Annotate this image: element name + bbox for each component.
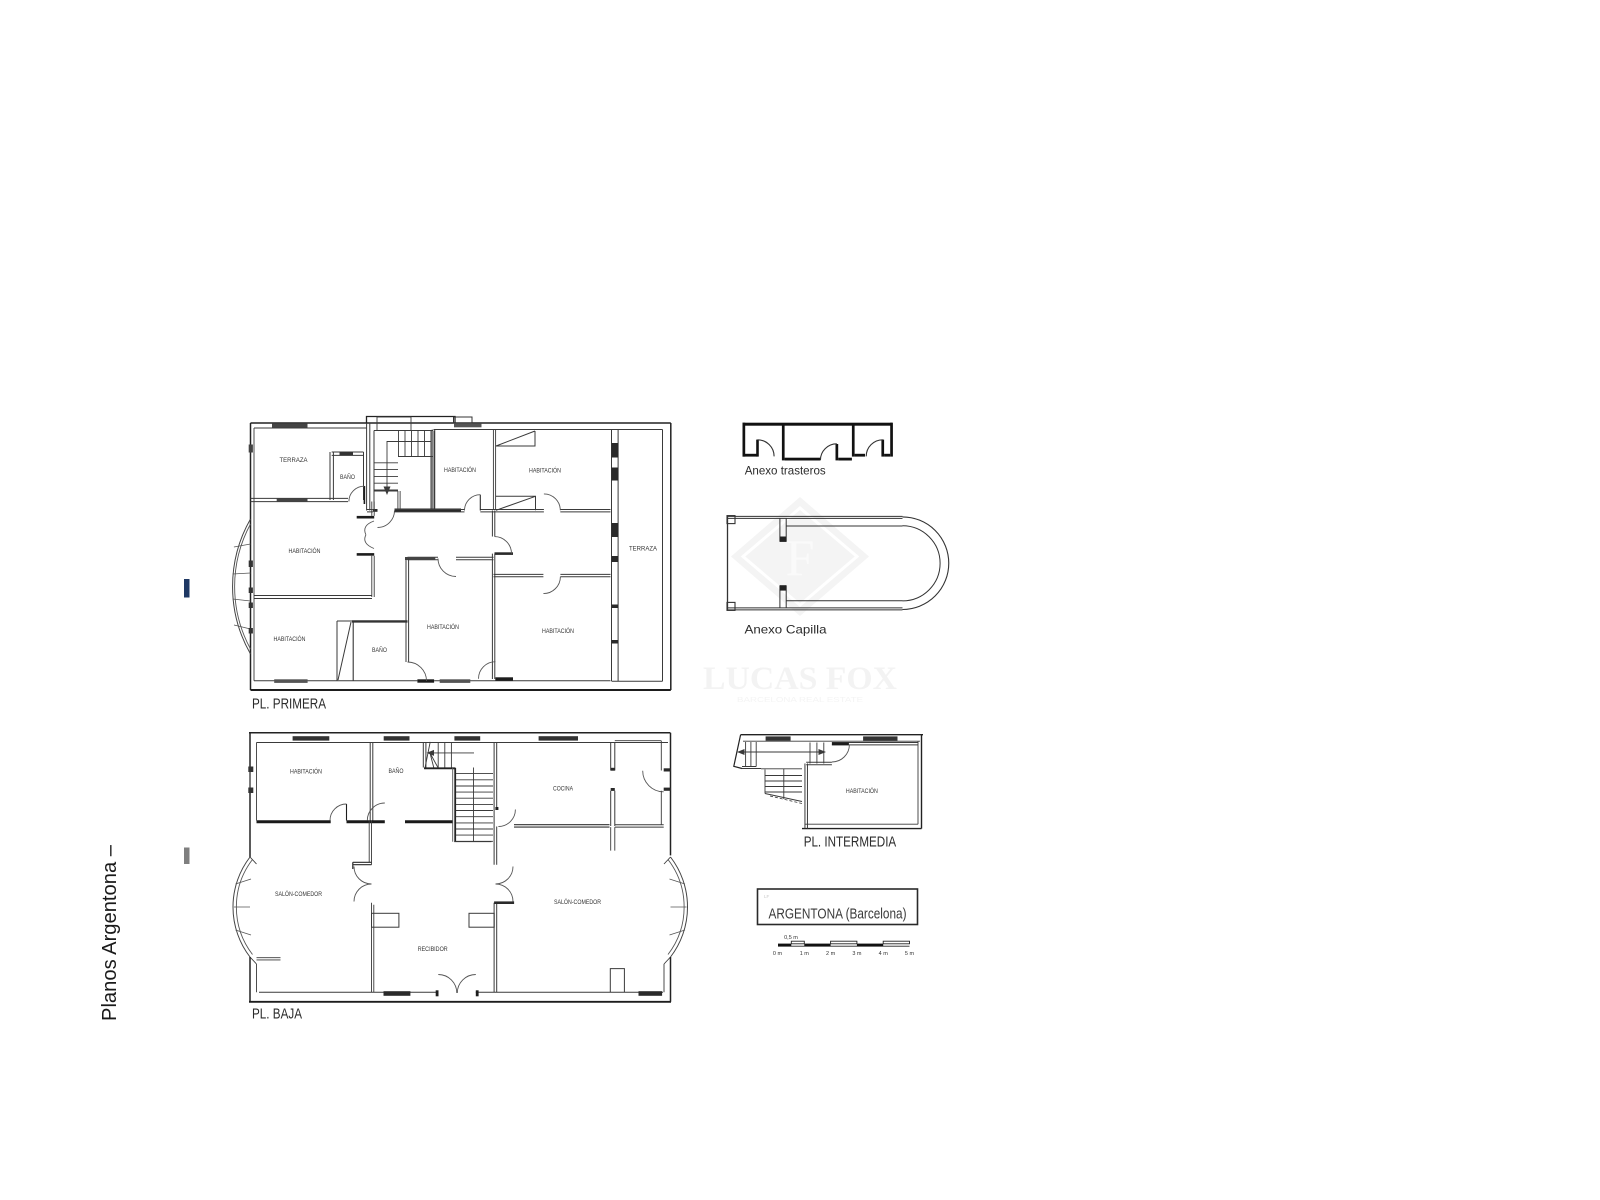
svg-text:HABITACIÓN: HABITACIÓN <box>444 465 476 474</box>
svg-text:PL. INTERMEDIA: PL. INTERMEDIA <box>804 835 897 851</box>
svg-text:BAÑO: BAÑO <box>340 472 355 481</box>
svg-text:TERRAZA: TERRAZA <box>280 457 309 464</box>
svg-text:Anexo trasteros: Anexo trasteros <box>745 464 826 478</box>
svg-text:HABITACIÓN: HABITACIÓN <box>290 767 322 776</box>
svg-text:PL. BAJA: PL. BAJA <box>252 1007 302 1023</box>
svg-text:HABITACIÓN: HABITACIÓN <box>289 546 321 555</box>
svg-text:1 m: 1 m <box>800 951 810 957</box>
svg-text:HABITACIÓN: HABITACIÓN <box>846 786 878 795</box>
svg-text:0 m: 0 m <box>773 951 783 957</box>
svg-text:LUCAS FOX: LUCAS FOX <box>703 661 897 697</box>
svg-text:COCINA: COCINA <box>553 786 574 793</box>
svg-text:HABITACIÓN: HABITACIÓN <box>274 634 306 643</box>
svg-text:Anexo Capilla: Anexo Capilla <box>745 623 827 637</box>
svg-text:3 m: 3 m <box>852 951 862 957</box>
svg-text:5 m: 5 m <box>905 951 915 957</box>
svg-text:Planos Argentona –: Planos Argentona – <box>99 844 121 1021</box>
svg-text:BAÑO: BAÑO <box>372 645 387 654</box>
svg-text:HABITACIÓN: HABITACIÓN <box>427 622 459 631</box>
svg-text:4 m: 4 m <box>879 951 889 957</box>
svg-text:SALÓN-COMEDOR: SALÓN-COMEDOR <box>554 897 601 906</box>
svg-text:2 m: 2 m <box>826 951 836 957</box>
svg-text:F: F <box>786 530 815 587</box>
svg-text:RECIBIDOR: RECIBIDOR <box>418 946 448 953</box>
svg-text:HABITACIÓN: HABITACIÓN <box>529 466 561 475</box>
svg-text:HABITACIÓN: HABITACIÓN <box>542 626 574 635</box>
svg-text:ARGENTONA (Barcelona): ARGENTONA (Barcelona) <box>769 907 907 923</box>
svg-text:LF: LF <box>764 894 770 899</box>
svg-text:0,5 m: 0,5 m <box>784 935 798 941</box>
svg-text:SALÓN-COMEDOR: SALÓN-COMEDOR <box>275 889 322 898</box>
svg-text:PL. PRIMERA: PL. PRIMERA <box>252 697 326 713</box>
svg-text:TERRAZA: TERRAZA <box>629 546 658 553</box>
svg-text:BAÑO: BAÑO <box>389 766 404 775</box>
svg-text:BARCELONA REAL ESTATE: BARCELONA REAL ESTATE <box>737 695 863 704</box>
